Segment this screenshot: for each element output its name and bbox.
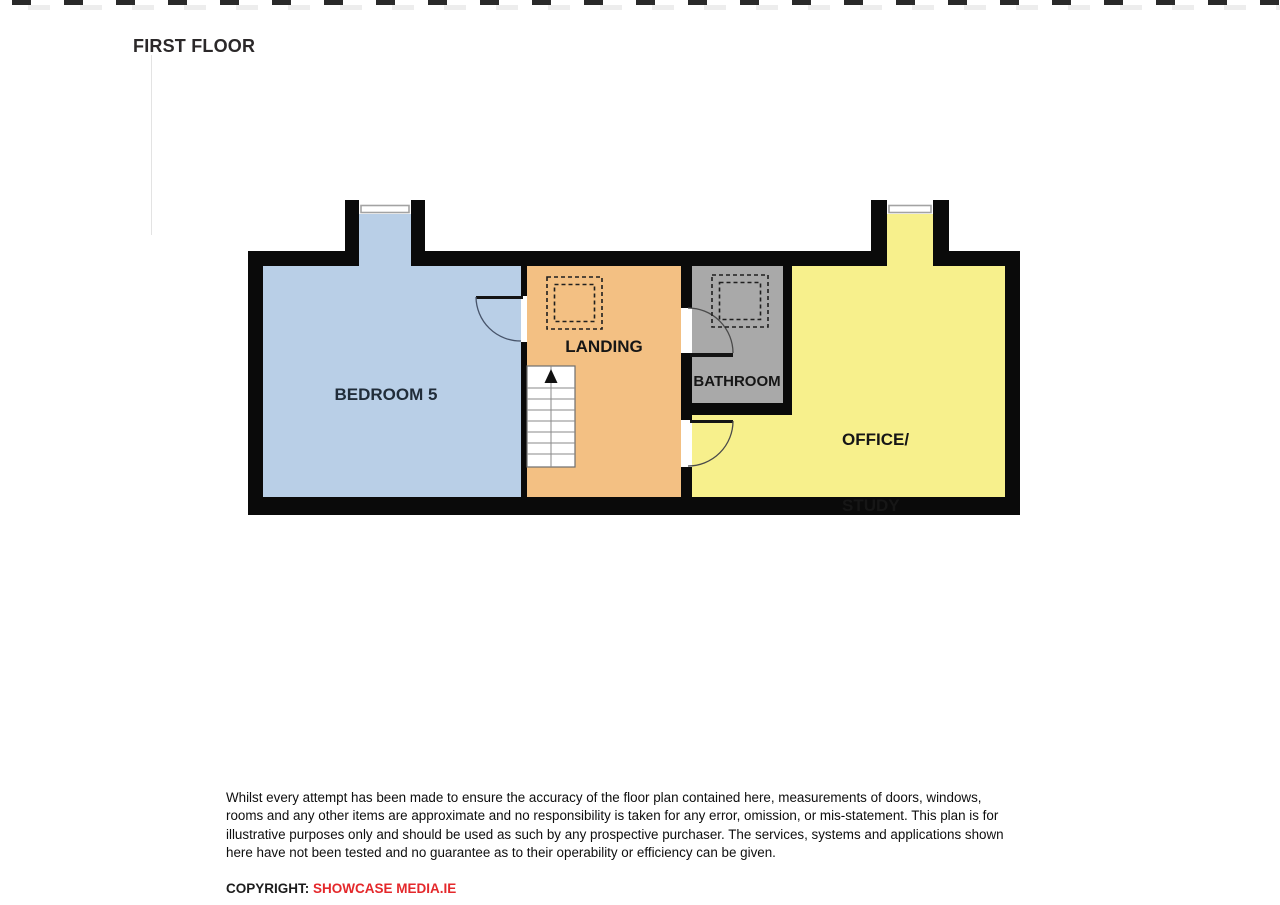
floorplan-page: FIRST FLOOR: [0, 0, 1280, 905]
room-label-office-line2: STUDY: [842, 495, 909, 517]
floorplan-drawing: [0, 0, 1280, 905]
room-label-office-study: OFFICE/ STUDY: [842, 385, 909, 561]
room-label-bathroom: BATHROOM: [687, 373, 787, 390]
office-door-opening: [681, 420, 692, 467]
disclaimer-line-2: rooms and any other items are approximat…: [226, 807, 1066, 825]
stairs-up: [527, 366, 575, 467]
disclaimer-text: Whilst every attempt has been made to en…: [226, 789, 1066, 863]
bedroom-window-icon: [361, 206, 409, 213]
room-label-bedroom: BEDROOM 5: [300, 385, 472, 405]
disclaimer-line-4: here have not been tested and no guarant…: [226, 844, 1066, 862]
copyright-prefix: COPYRIGHT:: [226, 881, 313, 896]
room-label-landing: LANDING: [544, 337, 664, 357]
copyright-line: COPYRIGHT: SHOWCASE MEDIA.IE: [226, 881, 456, 896]
disclaimer-line-3: illustrative purposes only and should be…: [226, 826, 1066, 844]
bedroom-floor: [263, 266, 521, 497]
bathroom-door-opening: [681, 308, 692, 353]
disclaimer-line-1: Whilst every attempt has been made to en…: [226, 789, 1066, 807]
office-floor-extension: [692, 415, 792, 497]
office-dormer-floor: [887, 214, 933, 266]
copyright-brand: SHOWCASE MEDIA.IE: [313, 881, 456, 896]
bedroom-door-opening: [521, 296, 527, 342]
bedroom-dormer-floor: [359, 214, 411, 266]
room-label-office-line1: OFFICE/: [842, 429, 909, 451]
room-bedroom: [263, 200, 521, 497]
office-window-icon: [889, 206, 931, 213]
